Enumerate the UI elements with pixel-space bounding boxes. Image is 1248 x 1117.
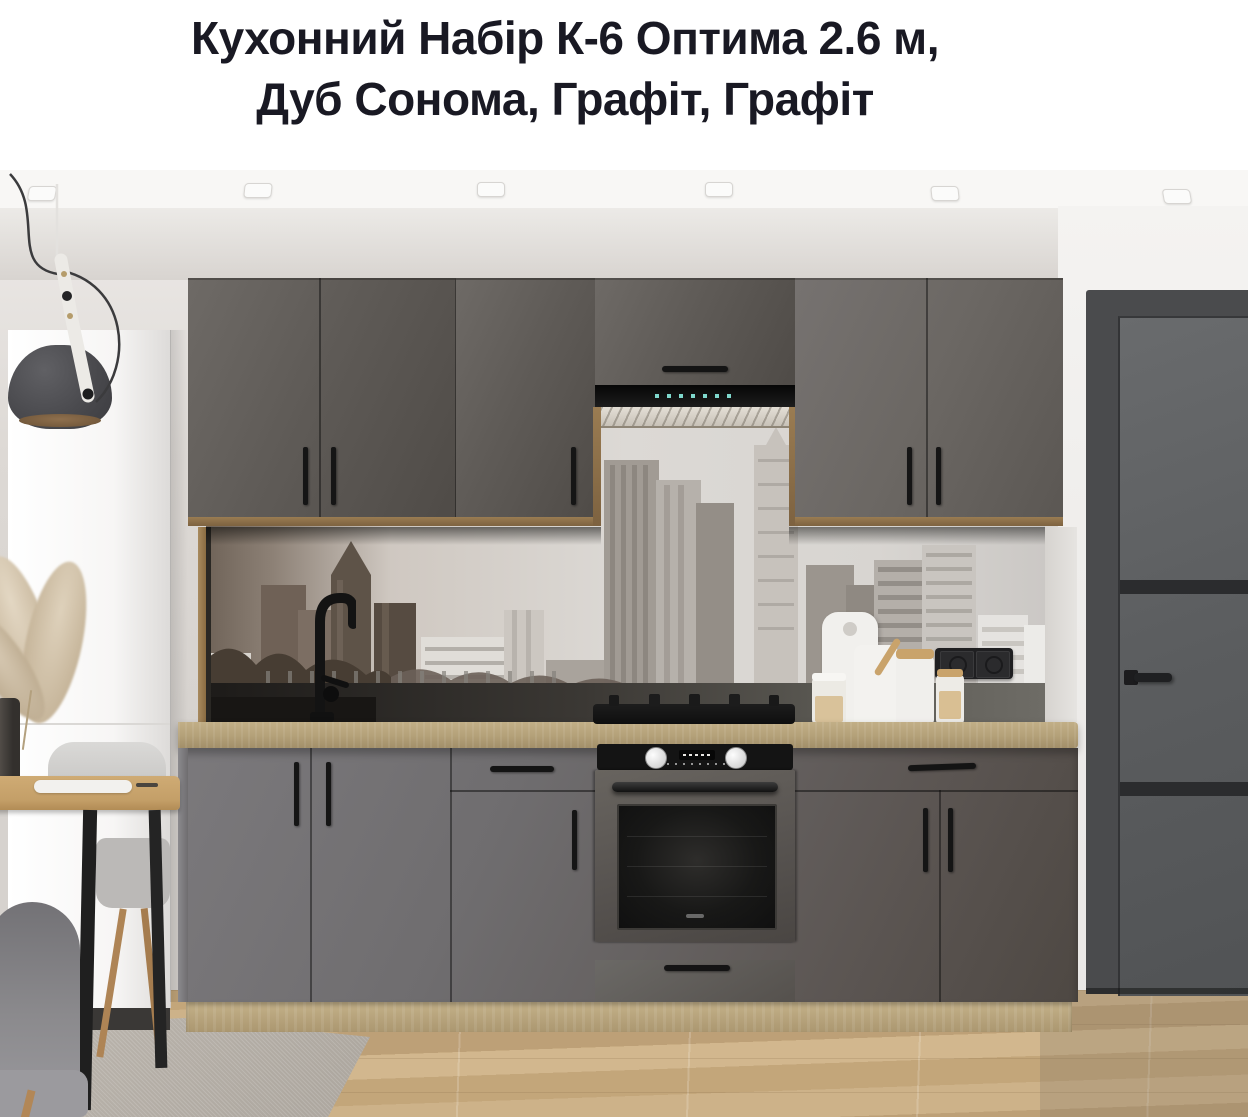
ceiling-light (705, 182, 733, 197)
front-chair (0, 902, 80, 1092)
table-utensil (136, 783, 158, 787)
upper-left-door-seam (319, 278, 321, 518)
backsplash-shadow-left (206, 527, 601, 545)
base-door-seam (310, 748, 312, 1002)
fridge-seam (8, 723, 170, 725)
ceiling-light (930, 186, 960, 201)
page-title-line1: Кухонний Набір К-6 Оптима 2.6 м, (0, 8, 1130, 69)
hood-control-panel (595, 385, 795, 407)
hood-cabinet-handle (662, 366, 728, 372)
product-card: Кухонний Набір К-6 Оптима 2.6 м, Дуб Сон… (0, 0, 1248, 1117)
backsplash-end-wall (1045, 527, 1077, 722)
upper-cabinet-bottom-trim (188, 517, 595, 526)
oven-knob-right (725, 747, 747, 769)
front-chair-seat (0, 1070, 88, 1117)
door-accent-strip (1120, 580, 1248, 594)
plate-on-table (34, 780, 132, 793)
cabinet-handle (948, 808, 953, 872)
hood-vent (601, 407, 789, 428)
cabinet-handle (326, 762, 331, 826)
cabinet-handle (572, 810, 577, 870)
socket-module (976, 651, 1010, 678)
upper-cabinet-right (795, 278, 1063, 520)
oven-control-panel (597, 744, 793, 770)
base-door-seam (939, 790, 941, 1002)
upper-right-door-seam (926, 278, 928, 518)
kitchen-photo (0, 170, 1248, 1117)
ceiling-soffit-shadow (0, 208, 1085, 280)
upper-cabinet-left (188, 278, 455, 520)
oven-knob-left (645, 747, 667, 769)
storage-jar (812, 678, 846, 724)
storage-jar (936, 675, 964, 724)
ceiling-light (477, 182, 505, 197)
pendant-lamp (0, 170, 160, 430)
gas-cooktop (593, 704, 795, 724)
cabinet-handle (907, 447, 912, 505)
page-title: Кухонний Набір К-6 Оптима 2.6 м, Дуб Сон… (0, 8, 1130, 130)
cabinet-handle (571, 447, 576, 505)
ceiling-light (243, 183, 273, 198)
door-handle (1124, 670, 1138, 685)
drawer-seam (795, 790, 1078, 792)
drawer-seam (450, 790, 595, 792)
page-title-line2: Дуб Сонома, Графіт, Графіт (0, 69, 1130, 130)
hood-display (655, 394, 735, 398)
drawer-handle (664, 965, 730, 971)
plinth (186, 1002, 1072, 1032)
ceiling-light (1162, 189, 1193, 204)
hood-side-trim (593, 407, 601, 526)
oven-handle (612, 782, 778, 792)
interior-door-panel (1118, 316, 1248, 996)
backsplash-shadow-right (789, 527, 1045, 545)
door-accent-strip (1120, 782, 1248, 796)
drawer-handle (490, 766, 554, 772)
cabinet-handle (331, 447, 336, 505)
cabinet-handle (936, 447, 941, 505)
upper-cabinet-bottom-trim (795, 517, 1063, 526)
cabinet-handle (303, 447, 308, 505)
oven-door-glass (617, 804, 777, 930)
oven-display (679, 750, 715, 760)
backsplash-side-trim (198, 527, 206, 722)
oven-logo (686, 914, 704, 918)
cabinet-handle (294, 762, 299, 826)
faucet (300, 582, 356, 722)
base-unit-seam (450, 748, 452, 1002)
storage-jar (896, 657, 934, 724)
cutting-board-hole (843, 622, 857, 636)
backsplash-frame-left (206, 527, 211, 722)
cabinet-handle (923, 808, 928, 872)
door-bottom-shadow (1086, 988, 1248, 994)
